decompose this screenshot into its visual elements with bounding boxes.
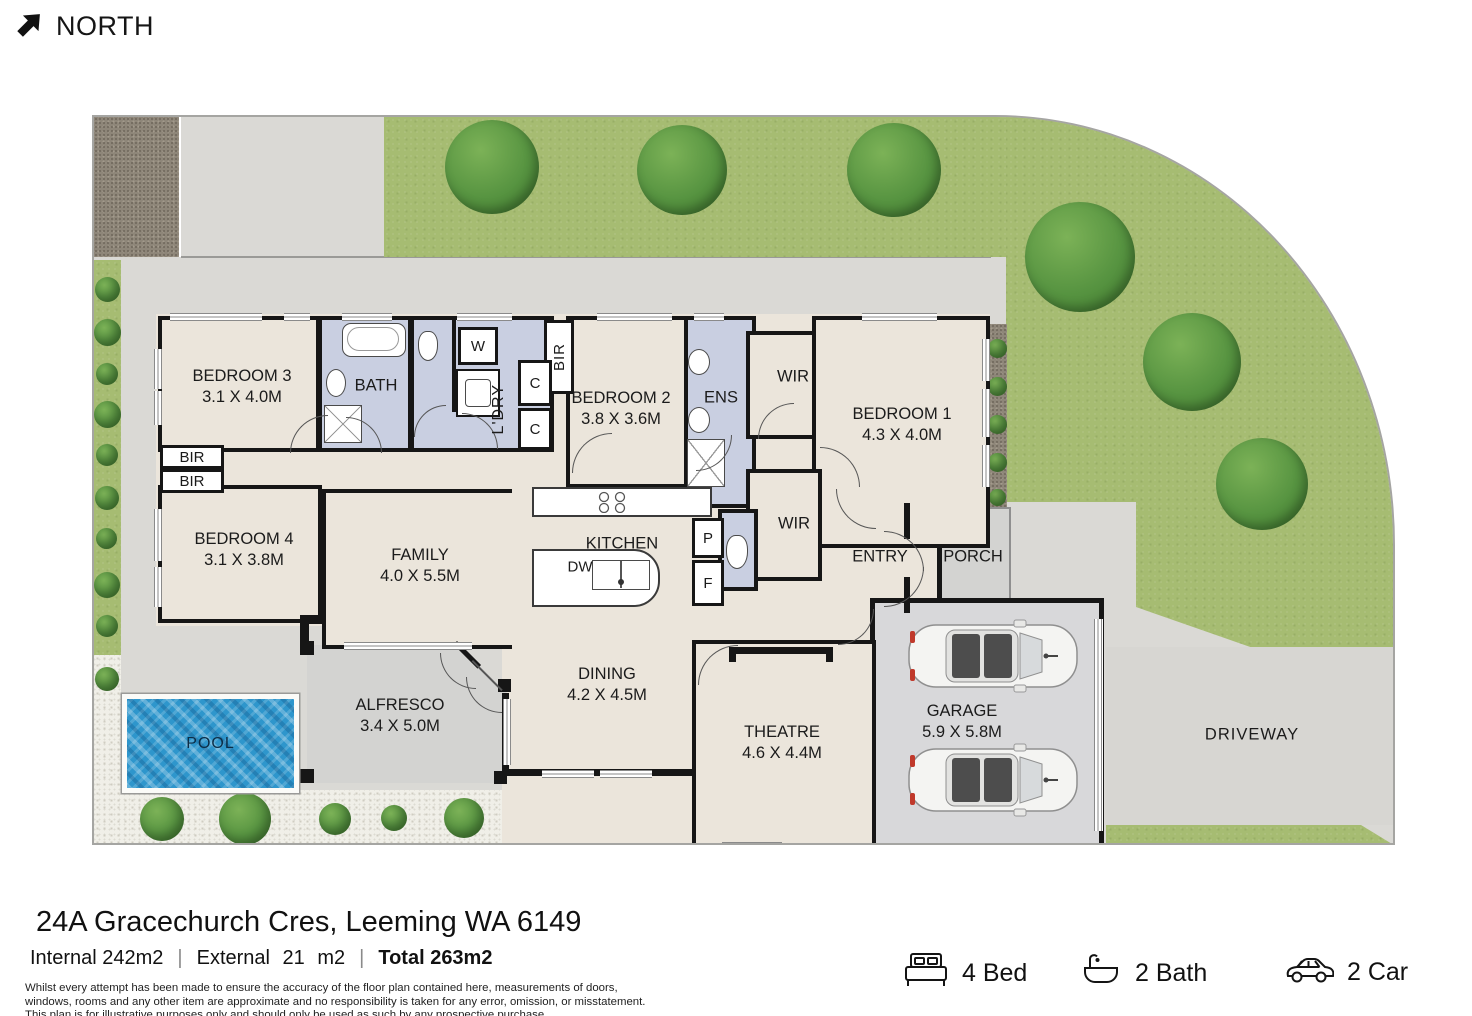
window [982,389,990,437]
bir-label: BIR [179,449,204,466]
fridge-label: F [703,575,712,592]
cupboard-label: C [530,421,541,438]
ens-basin [688,407,710,433]
bush [96,444,118,466]
bath-count: 2 Bath [1135,959,1207,988]
window [154,349,162,389]
label-bedroom2: BEDROOM 2 3.8 X 3.6M [571,388,670,430]
bir-label: BIR [179,473,204,490]
bush [95,667,119,691]
site-plan: BIR BIR BIR W C C P F DW [92,115,1395,845]
sink-tap [618,579,624,585]
window [154,391,162,425]
disclaimer: Whilst every attempt has been made to en… [25,982,645,1016]
tree [445,120,539,214]
bed-count: 4 Bed [962,959,1027,988]
window [694,313,724,321]
window [154,567,162,607]
window [342,313,392,321]
bush [95,277,120,302]
cooktop [594,491,634,513]
tree [637,125,727,215]
bush [94,319,121,346]
label-ens: ENS [704,388,738,409]
label-entry: ENTRY [852,547,908,568]
pool: POOL [122,694,299,793]
disclaimer-line: windows, rooms and any other item are ap… [25,996,645,1010]
window [170,313,262,321]
pantry-box: P [692,518,724,558]
window [597,313,672,321]
wc2-toilet [726,535,748,569]
wc1-toilet [418,331,438,361]
bush [96,363,118,385]
window [154,509,162,561]
stat-beds: 4 Bed [903,952,1027,995]
cupboard1: C [518,360,552,406]
trough-sink [465,379,491,407]
grass-strip-driveway [1106,825,1395,845]
window [344,642,472,650]
bush [988,415,1007,434]
total-area: Total 263m2 [378,947,492,970]
pantry-label: P [703,530,713,547]
label-bedroom1: BEDROOM 1 4.3 X 4.0M [852,404,951,446]
label-bedroom3: BEDROOM 3 3.1 X 4.0M [192,366,291,408]
bush [219,793,271,845]
internal-area: Internal 242m2 [30,947,163,970]
alfresco-post [300,769,314,783]
label-garage: GARAGE 5.9 X 5.8M [922,701,1002,743]
disclaimer-line: This plan is for illustrative purposes o… [25,1009,645,1016]
window [284,313,310,321]
washer-label: W [471,338,485,355]
area-metrics: Internal 242m2 | External 21 m2 | Total … [30,947,492,970]
closet-bir-top: BIR [160,445,224,469]
window [722,842,782,845]
wall-corner [300,615,309,655]
external-area: External 21 m2 [197,947,346,970]
label-family: FAMILY 4.0 X 5.5M [380,545,460,587]
label-laundry: L'DRY [490,384,508,434]
bush [140,797,184,841]
stat-baths: 2 Bath [1080,952,1207,995]
wall-dining-south [502,769,694,776]
window [503,699,511,765]
label-porch: PORCH [943,547,1003,568]
car-top-view [906,741,1084,824]
property-address: 24A Gracechurch Cres, Leeming WA 6149 [36,906,581,939]
bush [988,377,1007,396]
car-count: 2 Car [1347,958,1408,987]
separator: | [177,947,182,970]
theatre-screen-wall [729,647,833,662]
cupboard-label: C [530,375,541,392]
bathtub [342,323,406,357]
bush [95,486,119,510]
washer-box: W [458,327,498,365]
bush [444,798,484,838]
label-driveway: DRIVEWAY [1205,725,1299,746]
bush [988,453,1007,472]
dishwasher-label: DW [568,559,593,576]
bath-icon [1080,952,1122,995]
bush [94,572,120,598]
bed-icon [903,952,949,995]
pool-label: POOL [186,735,234,753]
ens-basin [688,349,710,375]
bir-label: BIR [551,343,568,371]
pool-water: POOL [127,699,294,788]
fridge-box: F [692,560,724,606]
bush [989,489,1006,506]
tree [1216,438,1308,530]
bush [96,528,117,549]
car-icon [1284,952,1334,993]
north-indicator: NORTH [14,8,154,45]
window [542,770,594,778]
label-dining: DINING 4.2 X 4.5M [567,664,647,706]
tree [1025,202,1135,312]
label-bath: BATH [355,376,398,397]
label-alfresco: ALFRESCO 3.4 X 5.0M [356,695,445,737]
disclaimer-line: Whilst every attempt has been made to en… [25,982,645,996]
label-kitchen: KITCHEN [586,534,658,555]
window [862,313,937,321]
separator: | [359,947,364,970]
tree [847,123,941,217]
bush [319,803,351,835]
gravel-pad [94,117,181,257]
north-label: NORTH [56,11,154,42]
north-arrow-icon [14,8,46,45]
bush [96,615,118,637]
wall-entry-porch [904,503,910,539]
window [457,313,512,321]
label-theatre: THEATRE 4.6 X 4.4M [742,722,822,764]
car-top-view [906,617,1084,700]
bath-basin [326,369,346,397]
bush [381,805,407,831]
kitchen-sink [592,560,650,590]
label-bedroom4: BEDROOM 4 3.1 X 3.8M [194,529,293,571]
closet-bir-bottom: BIR [160,469,224,493]
bathtub-inner [347,327,399,351]
label-wir-bottom: WIR [778,514,810,535]
bush [988,339,1007,358]
window [600,770,652,778]
window [982,445,990,487]
window [982,339,990,381]
tree [1143,313,1241,411]
cupboard2: C [518,408,552,450]
stat-cars: 2 Car [1284,952,1408,993]
bush [94,401,121,428]
garage-door [1094,619,1103,831]
label-wir-top: WIR [777,367,809,388]
